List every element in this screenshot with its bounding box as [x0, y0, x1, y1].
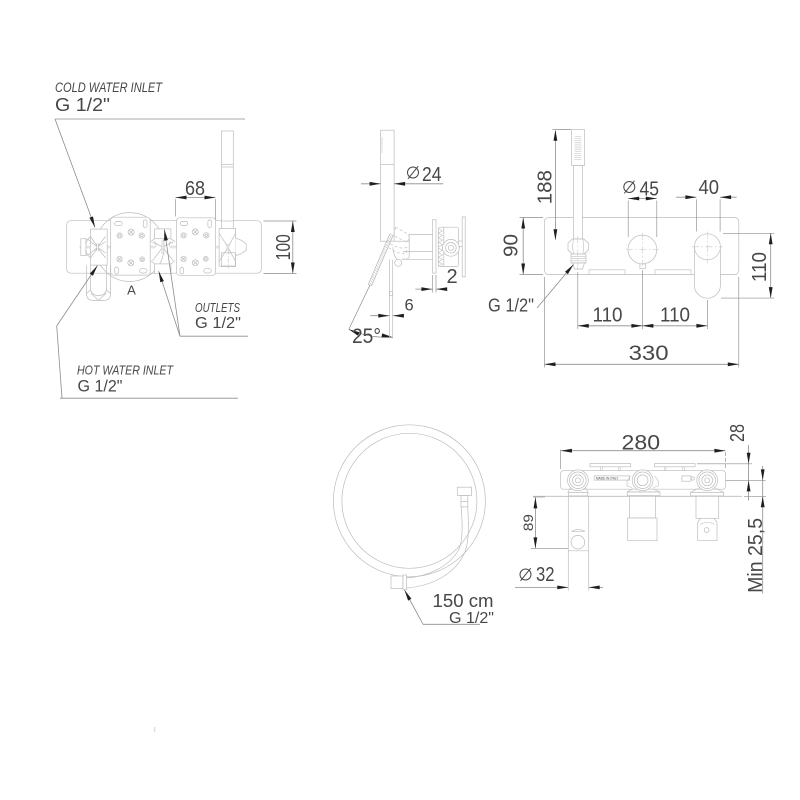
svg-text:Min 25,5: Min 25,5 — [745, 518, 767, 593]
svg-text:110: 110 — [749, 252, 771, 282]
svg-text:110: 110 — [660, 305, 690, 327]
svg-text:89: 89 — [520, 514, 536, 531]
svg-text:G 1/2": G 1/2" — [488, 296, 534, 316]
svg-text:MADE IN ITALY: MADE IN ITALY — [596, 476, 619, 480]
svg-text:6: 6 — [405, 297, 414, 315]
svg-text:330: 330 — [629, 342, 669, 365]
svg-text:OUTLETS: OUTLETS — [195, 300, 240, 315]
svg-text:G 1/2": G 1/2" — [195, 315, 241, 332]
svg-text:32: 32 — [536, 564, 555, 586]
svg-text:150 cm: 150 cm — [433, 591, 494, 611]
svg-text:90: 90 — [501, 234, 523, 257]
svg-text:G 1/2": G 1/2" — [78, 378, 123, 396]
svg-text:COLD WATER INLET: COLD WATER INLET — [55, 80, 163, 95]
svg-text:G 1/2": G 1/2" — [55, 95, 110, 115]
svg-text:28: 28 — [727, 424, 749, 442]
svg-text:188: 188 — [535, 170, 557, 204]
svg-text:25°: 25° — [352, 325, 381, 348]
svg-text:A: A — [127, 283, 136, 298]
svg-text:100: 100 — [273, 234, 295, 260]
svg-text:110: 110 — [593, 305, 623, 327]
svg-text:HOT WATER INLET: HOT WATER INLET — [77, 362, 174, 377]
svg-text:68: 68 — [185, 178, 205, 200]
svg-text:2: 2 — [447, 266, 458, 288]
svg-text:40: 40 — [699, 177, 720, 199]
svg-text:24: 24 — [422, 164, 442, 186]
